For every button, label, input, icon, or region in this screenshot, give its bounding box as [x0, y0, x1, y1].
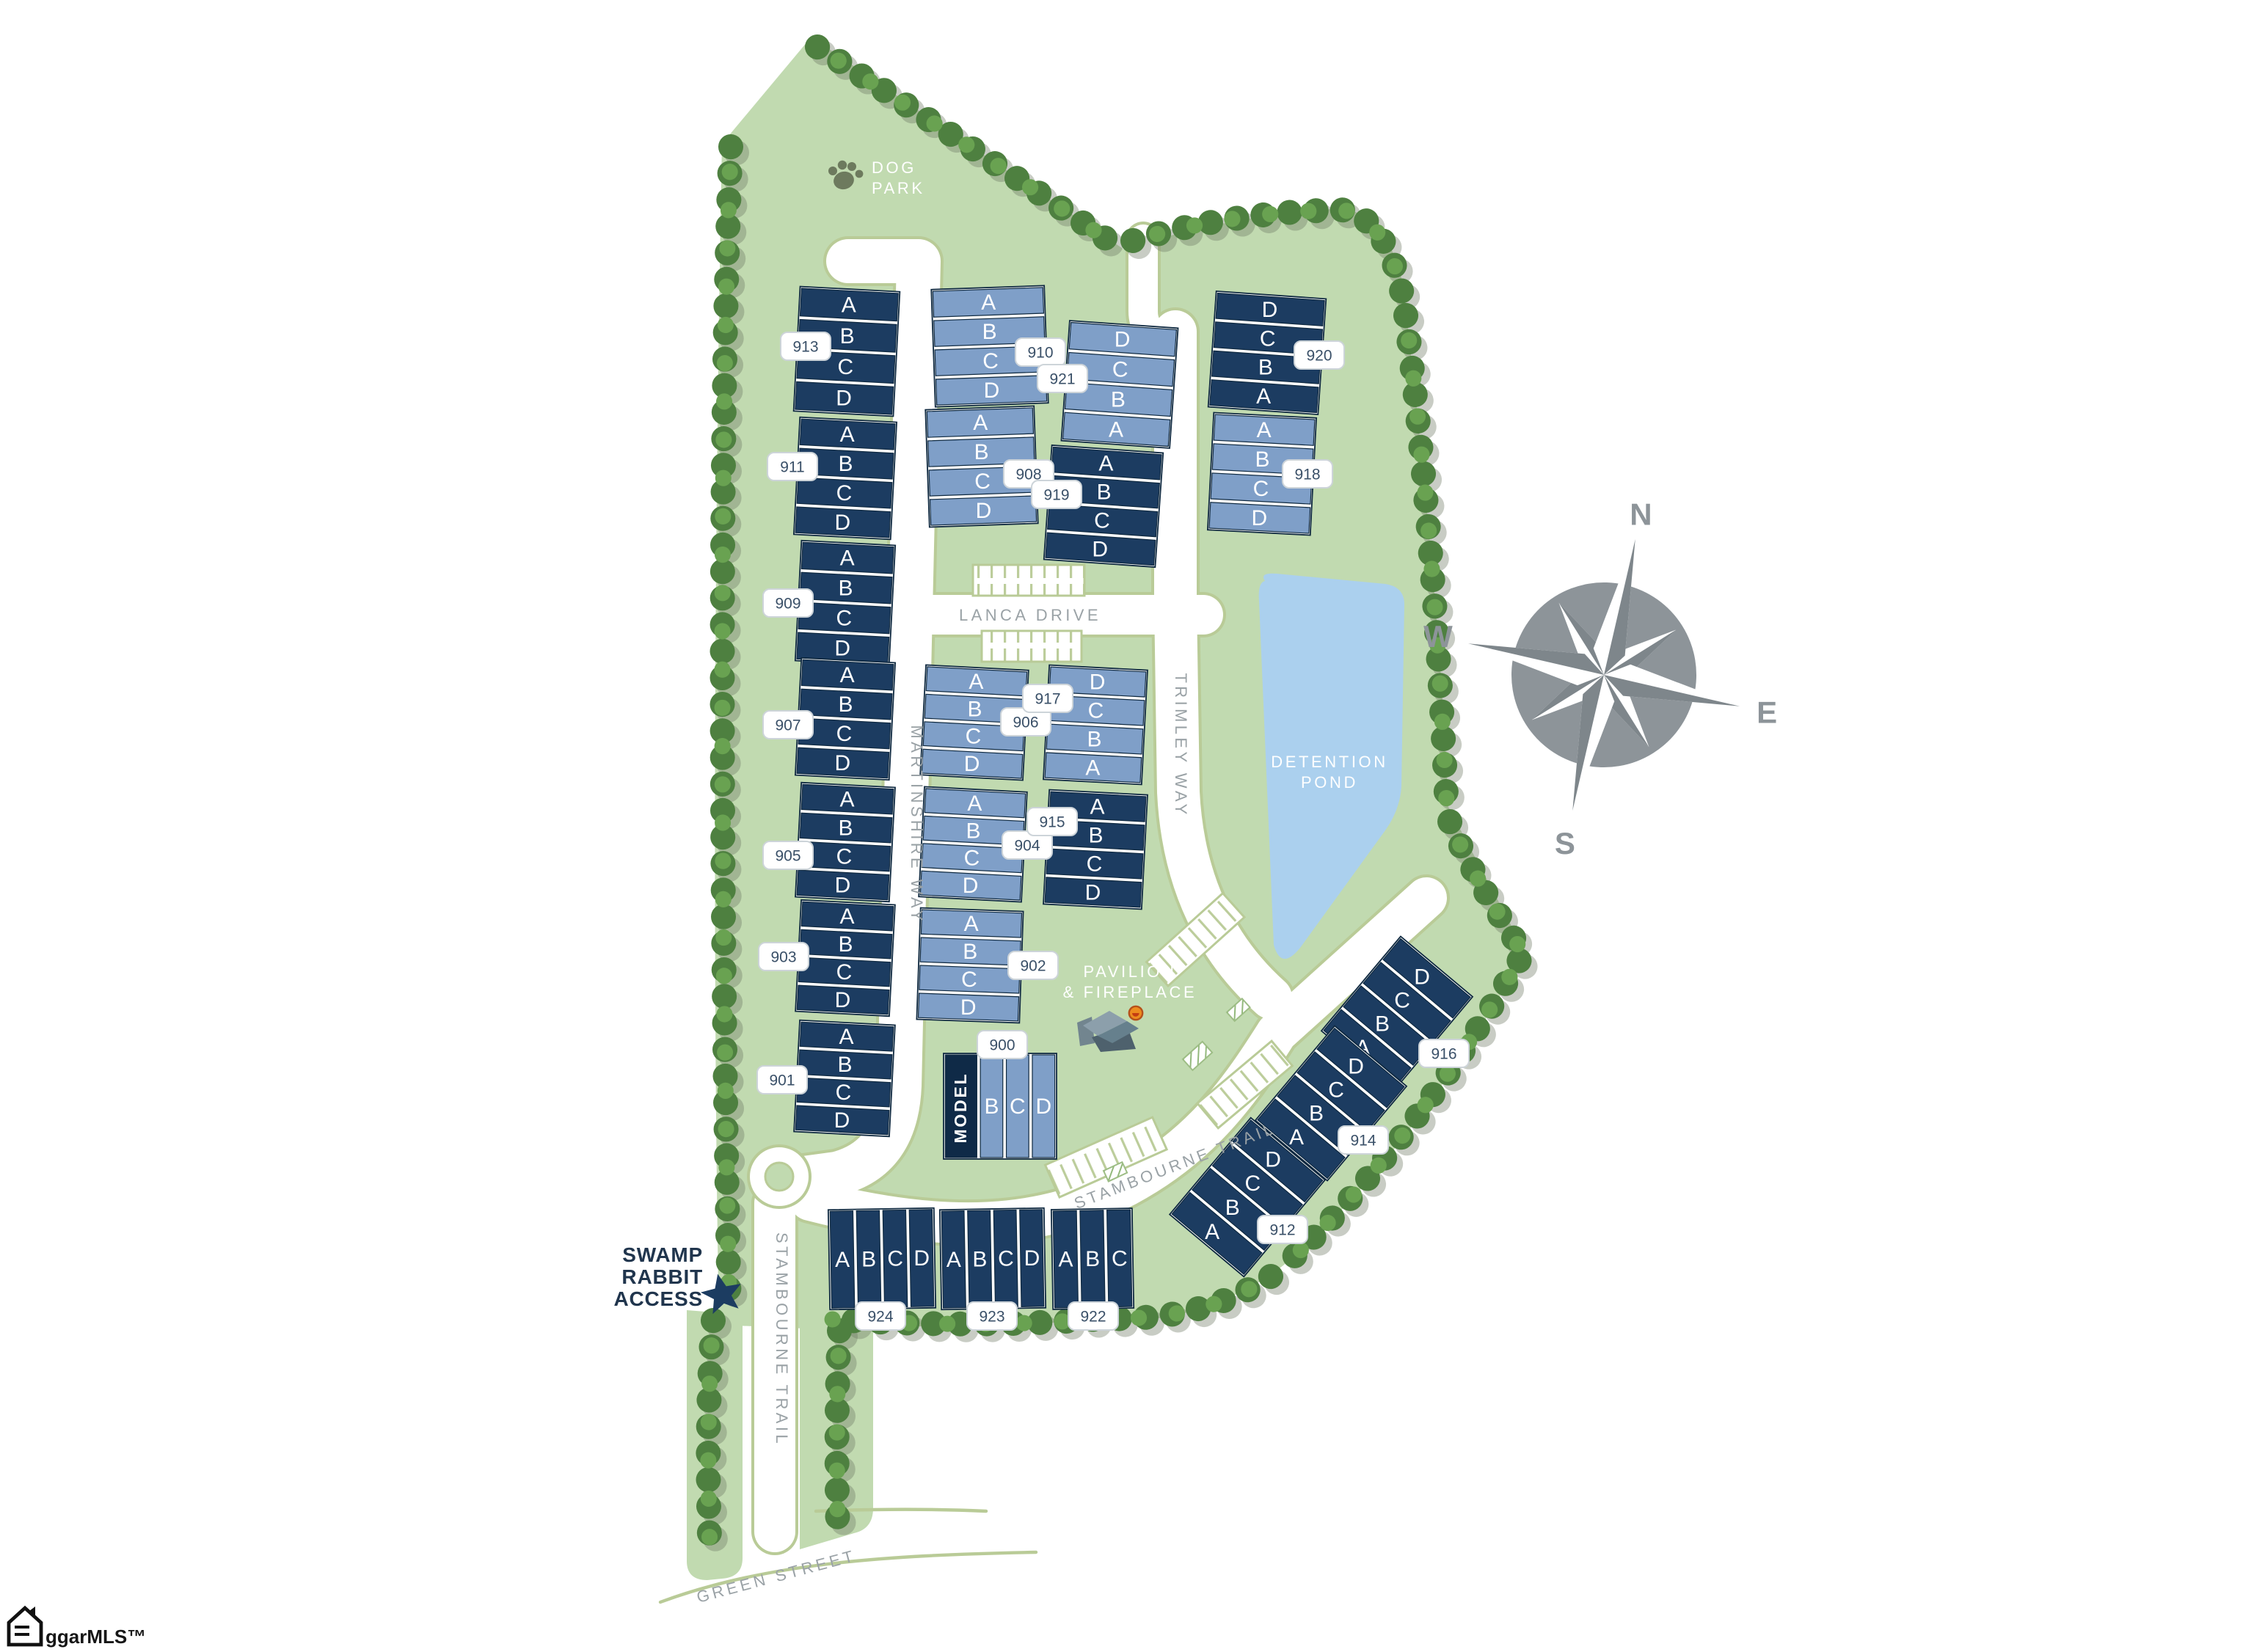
unit-label: C — [964, 847, 980, 871]
badge-number: 909 — [775, 596, 800, 613]
unit-label: C — [966, 725, 982, 749]
badge-915: 915 — [1027, 808, 1077, 836]
unit-label: A — [969, 670, 983, 694]
unit-label: C — [836, 722, 853, 746]
unit-label: B — [1087, 727, 1101, 751]
unit-label: B — [840, 324, 855, 348]
badge-920: 920 — [1294, 341, 1344, 369]
unit-label: A — [1059, 1248, 1073, 1272]
unit-label: B — [839, 692, 853, 717]
watermark-logo: ggarMLS™ — [9, 1607, 146, 1648]
street-label-trimley: TRIMLEY WAY — [1172, 673, 1190, 817]
unit-label: C — [1253, 477, 1269, 501]
unit-label: B — [1255, 447, 1270, 472]
unit-label: B — [1085, 1247, 1100, 1271]
unit-label: C — [974, 469, 991, 494]
unit-label: A — [1257, 418, 1272, 442]
pavilion-label-1: PAVILION — [1083, 962, 1176, 981]
unit-label: B — [839, 577, 853, 601]
badge-number: 922 — [1080, 1309, 1106, 1326]
unit-label: B — [839, 452, 853, 476]
building-902: ABCD — [916, 908, 1023, 1023]
roundabout — [748, 1146, 810, 1207]
unit-label: A — [840, 663, 855, 687]
badge-900: 900 — [977, 1031, 1027, 1059]
building-923: ABCD — [940, 1208, 1046, 1309]
unit-label: C — [836, 606, 853, 630]
badge-905: 905 — [763, 841, 813, 869]
badge-912: 912 — [1258, 1216, 1307, 1243]
unit-label: C — [887, 1247, 903, 1271]
badge-number: 903 — [770, 949, 796, 966]
unit-label: MODEL — [951, 1072, 970, 1143]
badge-number: 902 — [1020, 958, 1046, 975]
unit-label: A — [1085, 756, 1100, 780]
badge-911: 911 — [767, 453, 817, 480]
unit-label: B — [972, 1247, 987, 1271]
building-900: MODELBCD — [944, 1053, 1057, 1159]
unit-label: D — [964, 752, 980, 776]
unit-label: C — [1094, 508, 1110, 533]
unit-label: A — [840, 547, 855, 571]
unit-label: B — [837, 1053, 852, 1077]
badge-number: 919 — [1043, 487, 1069, 504]
badge-number: 905 — [775, 848, 800, 865]
detention-pond-label-1: DETENTION — [1271, 753, 1388, 771]
unit-label: B — [963, 940, 977, 964]
street-label-martinshire: MARTINSHIRE WAY — [908, 726, 926, 924]
unit-label: B — [1375, 1012, 1390, 1037]
unit-label: D — [976, 499, 992, 523]
unit-label: D — [835, 988, 851, 1012]
badge-914: 914 — [1338, 1126, 1388, 1154]
unit-label: C — [836, 960, 853, 984]
unit-label: A — [964, 912, 979, 936]
pavilion-label-2: & FIREPLACE — [1063, 983, 1197, 1001]
unit-label: C — [836, 844, 853, 869]
unit-label: B — [1097, 480, 1112, 505]
unit-label: B — [967, 697, 982, 721]
unit-label: A — [842, 293, 856, 317]
unit-label: C — [1245, 1172, 1261, 1196]
unit-label: B — [1309, 1102, 1324, 1126]
unit-label: A — [1098, 452, 1113, 476]
unit-label: C — [961, 968, 977, 992]
dog-park-label-1: DOG — [872, 158, 916, 177]
unit-label: D — [1262, 298, 1278, 322]
watermark-text: ggarMLS™ — [45, 1626, 146, 1648]
badge-number: 910 — [1027, 345, 1053, 362]
unit-label: A — [1090, 795, 1105, 819]
badge-number: 924 — [867, 1309, 893, 1326]
badge-number: 906 — [1013, 714, 1038, 731]
badge-917: 917 — [1023, 684, 1073, 712]
badge-909: 909 — [763, 589, 813, 617]
badge-number: 918 — [1294, 467, 1320, 483]
unit-label: C — [998, 1247, 1014, 1271]
street-label-stambourne-south: STAMBOURNE TRAIL — [773, 1232, 791, 1447]
unit-label: B — [974, 440, 989, 464]
unit-label: C — [836, 481, 853, 505]
unit-label: C — [1010, 1094, 1026, 1119]
unit-label: D — [1090, 670, 1106, 695]
unit-label: D — [1265, 1147, 1281, 1172]
unit-label: C — [836, 1081, 852, 1105]
unit-label: A — [947, 1248, 961, 1272]
unit-label: A — [840, 423, 855, 447]
unit-label: D — [1115, 328, 1131, 352]
unit-label: D — [834, 1108, 850, 1133]
unit-label: C — [1112, 358, 1128, 382]
badge-number: 913 — [792, 339, 818, 356]
compass-s: S — [1555, 826, 1575, 860]
unit-label: A — [973, 411, 988, 435]
unit-label: D — [835, 511, 851, 535]
badge-number: 900 — [989, 1037, 1015, 1054]
swamp-rabbit-label-3: ACCESS — [614, 1287, 704, 1310]
badge-919: 919 — [1032, 480, 1082, 508]
unit-label: C — [1112, 1246, 1128, 1271]
badge-918: 918 — [1283, 460, 1332, 488]
detention-pond-label-2: POND — [1301, 773, 1358, 792]
unit-label: D — [1092, 537, 1108, 561]
compass-e: E — [1757, 695, 1777, 729]
compass-n: N — [1630, 497, 1652, 532]
building-917: DCBA — [1043, 665, 1148, 785]
unit-label: D — [1035, 1094, 1051, 1119]
badge-910: 910 — [1015, 338, 1065, 366]
badge-913: 913 — [781, 332, 831, 360]
unit-label: A — [839, 904, 854, 929]
building-924: ABCD — [828, 1208, 935, 1309]
site-plan-map: ABCDABCDABCDABCDABCDABCDABCDABCDDCBAABCD… — [0, 0, 2254, 1652]
dog-park-label-2: PARK — [872, 179, 925, 197]
badge-number: 923 — [979, 1309, 1004, 1326]
unit-label: B — [1225, 1196, 1240, 1220]
unit-label: D — [960, 995, 977, 1020]
badge-907: 907 — [763, 711, 813, 739]
badge-number: 901 — [769, 1072, 795, 1089]
badge-number: 915 — [1039, 814, 1065, 831]
unit-label: D — [984, 379, 1000, 403]
unit-label: A — [981, 290, 996, 315]
badge-921: 921 — [1037, 365, 1087, 392]
badge-924: 924 — [856, 1302, 905, 1330]
badge-number: 904 — [1014, 838, 1040, 855]
unit-label: C — [1088, 699, 1104, 723]
unit-label: C — [982, 349, 999, 373]
unit-label: D — [835, 873, 851, 897]
unit-label: A — [1289, 1125, 1304, 1150]
unit-label: B — [1111, 387, 1126, 412]
unit-label: B — [966, 819, 980, 843]
badge-901: 901 — [757, 1066, 807, 1094]
swamp-rabbit-label-2: RABBIT — [621, 1265, 703, 1288]
badge-number: 920 — [1306, 348, 1332, 365]
building-922: ABC — [1051, 1208, 1134, 1309]
badge-number: 921 — [1049, 371, 1075, 388]
unit-label: A — [1256, 384, 1271, 409]
badge-number: 907 — [775, 717, 800, 734]
badge-902: 902 — [1008, 951, 1058, 979]
unit-label: D — [1252, 506, 1268, 530]
unit-label: C — [1087, 852, 1103, 876]
unit-label: B — [1088, 824, 1103, 848]
unit-label: D — [835, 751, 851, 775]
unit-label: B — [984, 1094, 999, 1119]
unit-label: B — [1258, 356, 1273, 380]
badge-number: 914 — [1350, 1133, 1376, 1150]
unit-label: A — [1205, 1220, 1219, 1244]
unit-label: D — [834, 636, 850, 660]
unit-label: B — [982, 320, 997, 344]
unit-label: C — [1394, 989, 1410, 1013]
unit-label: B — [838, 932, 853, 957]
compass-w: W — [1423, 619, 1453, 654]
unit-label: D — [1085, 880, 1101, 904]
badge-number: 912 — [1269, 1222, 1295, 1239]
swamp-rabbit-label-1: SWAMP — [622, 1243, 703, 1266]
unit-label: C — [1260, 326, 1276, 351]
badge-903: 903 — [759, 943, 809, 971]
unit-label: D — [836, 387, 852, 411]
badge-number: 917 — [1035, 691, 1060, 708]
unit-label: D — [913, 1246, 930, 1271]
badge-number: 911 — [780, 459, 804, 476]
unit-label: A — [840, 788, 855, 812]
unit-label: A — [835, 1248, 850, 1272]
unit-label: D — [1348, 1054, 1364, 1078]
badge-922: 922 — [1068, 1302, 1118, 1330]
unit-label: C — [838, 355, 854, 379]
unit-label: A — [839, 1025, 853, 1049]
unit-label: B — [838, 816, 853, 841]
unit-label: D — [963, 874, 979, 898]
badge-number: 916 — [1431, 1046, 1456, 1063]
badge-923: 923 — [967, 1302, 1017, 1330]
street-label-lanca: LANCA DRIVE — [959, 606, 1101, 624]
unit-label: A — [967, 792, 982, 816]
unit-label: A — [1109, 417, 1123, 442]
unit-label: C — [1328, 1078, 1344, 1103]
house-icon — [9, 1607, 41, 1645]
building-903: ABCD — [795, 900, 895, 1016]
building-901: ABCD — [794, 1020, 895, 1137]
unit-label: D — [1024, 1246, 1040, 1271]
unit-label: B — [861, 1247, 876, 1271]
unit-label: D — [1414, 965, 1430, 989]
badge-916: 916 — [1419, 1039, 1469, 1067]
